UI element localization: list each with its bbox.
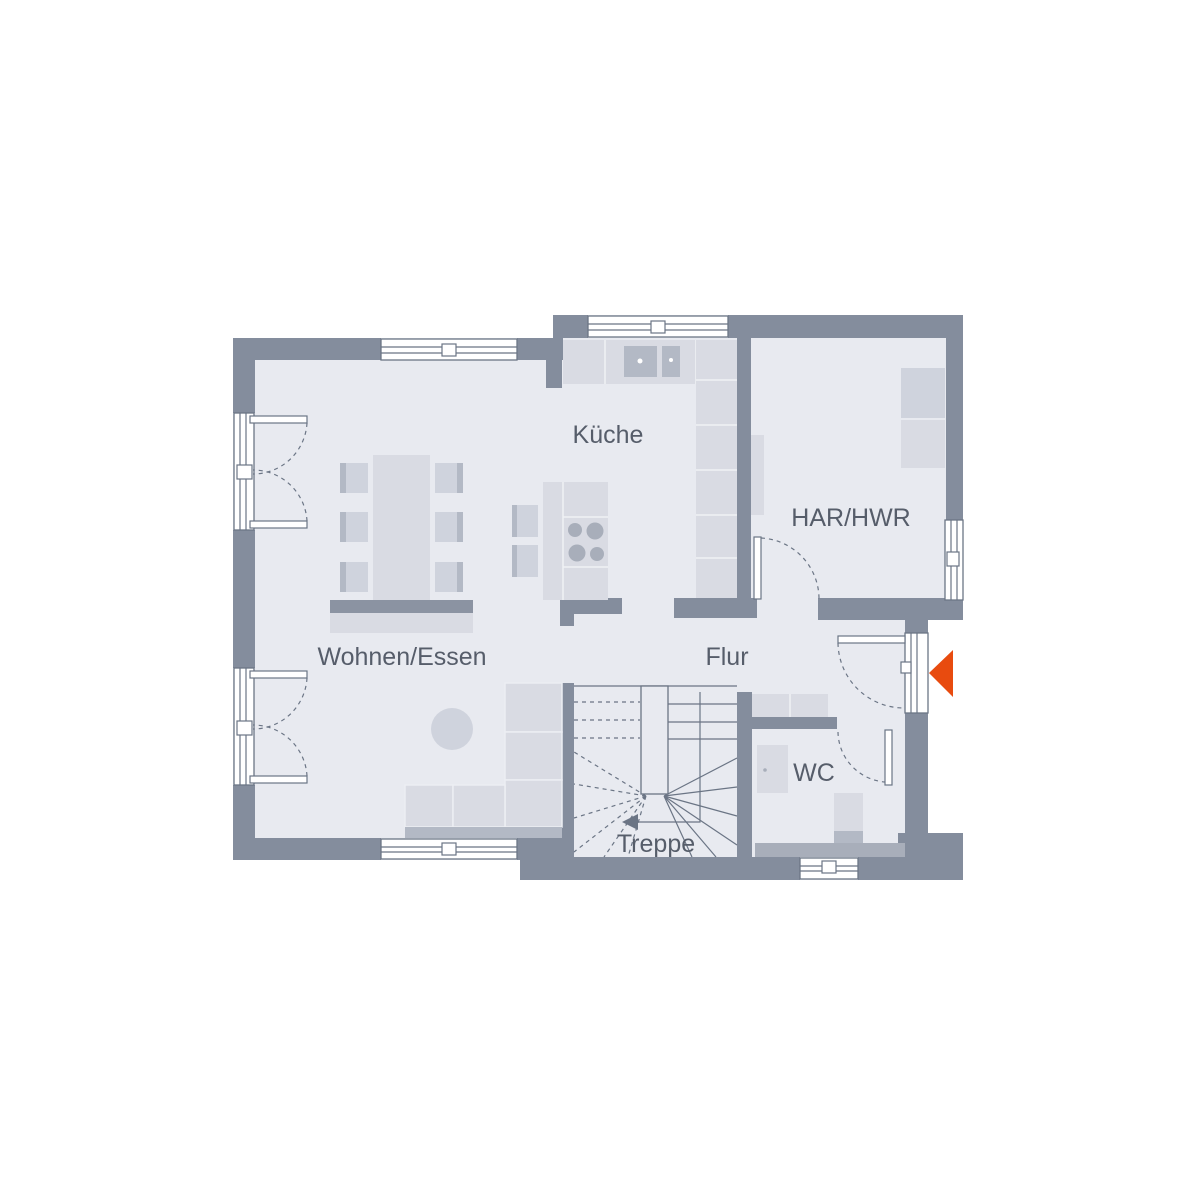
stair-void	[641, 686, 668, 794]
sofa-base	[405, 827, 562, 838]
window-living-bottom	[381, 839, 517, 859]
window-utility	[945, 520, 963, 600]
wall-stub-island-vert	[560, 598, 574, 626]
room-label-utility: HAR/HWR	[791, 504, 910, 532]
window-handle	[442, 843, 456, 855]
ottoman	[431, 708, 473, 750]
cooktop-burner	[569, 545, 586, 562]
room-label-living: Wohnen/Essen	[317, 643, 486, 671]
wall-stairwell-left	[562, 683, 574, 857]
door-handle	[237, 465, 252, 479]
toilet	[834, 793, 863, 831]
room-label-hall: Flur	[705, 643, 748, 671]
sideboard-base	[330, 613, 473, 633]
house-plan-svg: Küche HAR/HWR Wohnen/Essen Flur WC Trepp…	[0, 0, 1200, 1200]
washbasin	[757, 745, 788, 793]
dining-chair	[435, 562, 463, 592]
bar-stool	[512, 505, 538, 537]
dining-table	[373, 455, 430, 600]
wall-wc-top	[737, 717, 837, 729]
utility-shelf	[751, 435, 764, 515]
entrance-arrow-icon	[929, 650, 953, 697]
cooktop-burner	[590, 547, 604, 561]
wall-stub-kitchen-living	[546, 338, 562, 388]
window-handle	[442, 344, 456, 356]
hall-wardrobe	[752, 694, 828, 717]
wc-vanity-band	[755, 843, 905, 857]
window-living-top	[381, 339, 517, 360]
dining-chair	[340, 463, 368, 493]
floor-plan-page: Küche HAR/HWR Wohnen/Essen Flur WC Trepp…	[0, 0, 1200, 1200]
window-wc	[800, 858, 858, 879]
wall-hall-left-of-utility-door	[674, 598, 757, 618]
room-label-wc: WC	[793, 759, 835, 787]
dryer	[901, 420, 945, 468]
kitchen-cabinets	[696, 340, 737, 598]
cooktop-burner	[568, 523, 582, 537]
sideboard	[330, 600, 473, 613]
window-handle	[947, 552, 959, 566]
wall-stairwell-right	[737, 692, 752, 857]
wall-utility-bottom	[818, 598, 963, 620]
window-kitchen	[588, 316, 728, 337]
door-handle	[237, 721, 252, 735]
cooktop-burner	[587, 523, 604, 540]
dining-chair	[435, 463, 463, 493]
window-handle	[651, 321, 665, 333]
window-handle	[822, 861, 836, 873]
toilet-tank	[834, 831, 863, 843]
dining-chair	[435, 512, 463, 542]
washer	[901, 368, 945, 418]
dining-chair	[340, 562, 368, 592]
room-label-kitchen: Küche	[573, 421, 644, 449]
dining-chair	[340, 512, 368, 542]
room-label-stairs: Treppe	[617, 830, 695, 858]
door-handle	[901, 662, 911, 673]
bar-stool	[512, 545, 538, 577]
wall-kitchen-utility	[737, 338, 751, 600]
